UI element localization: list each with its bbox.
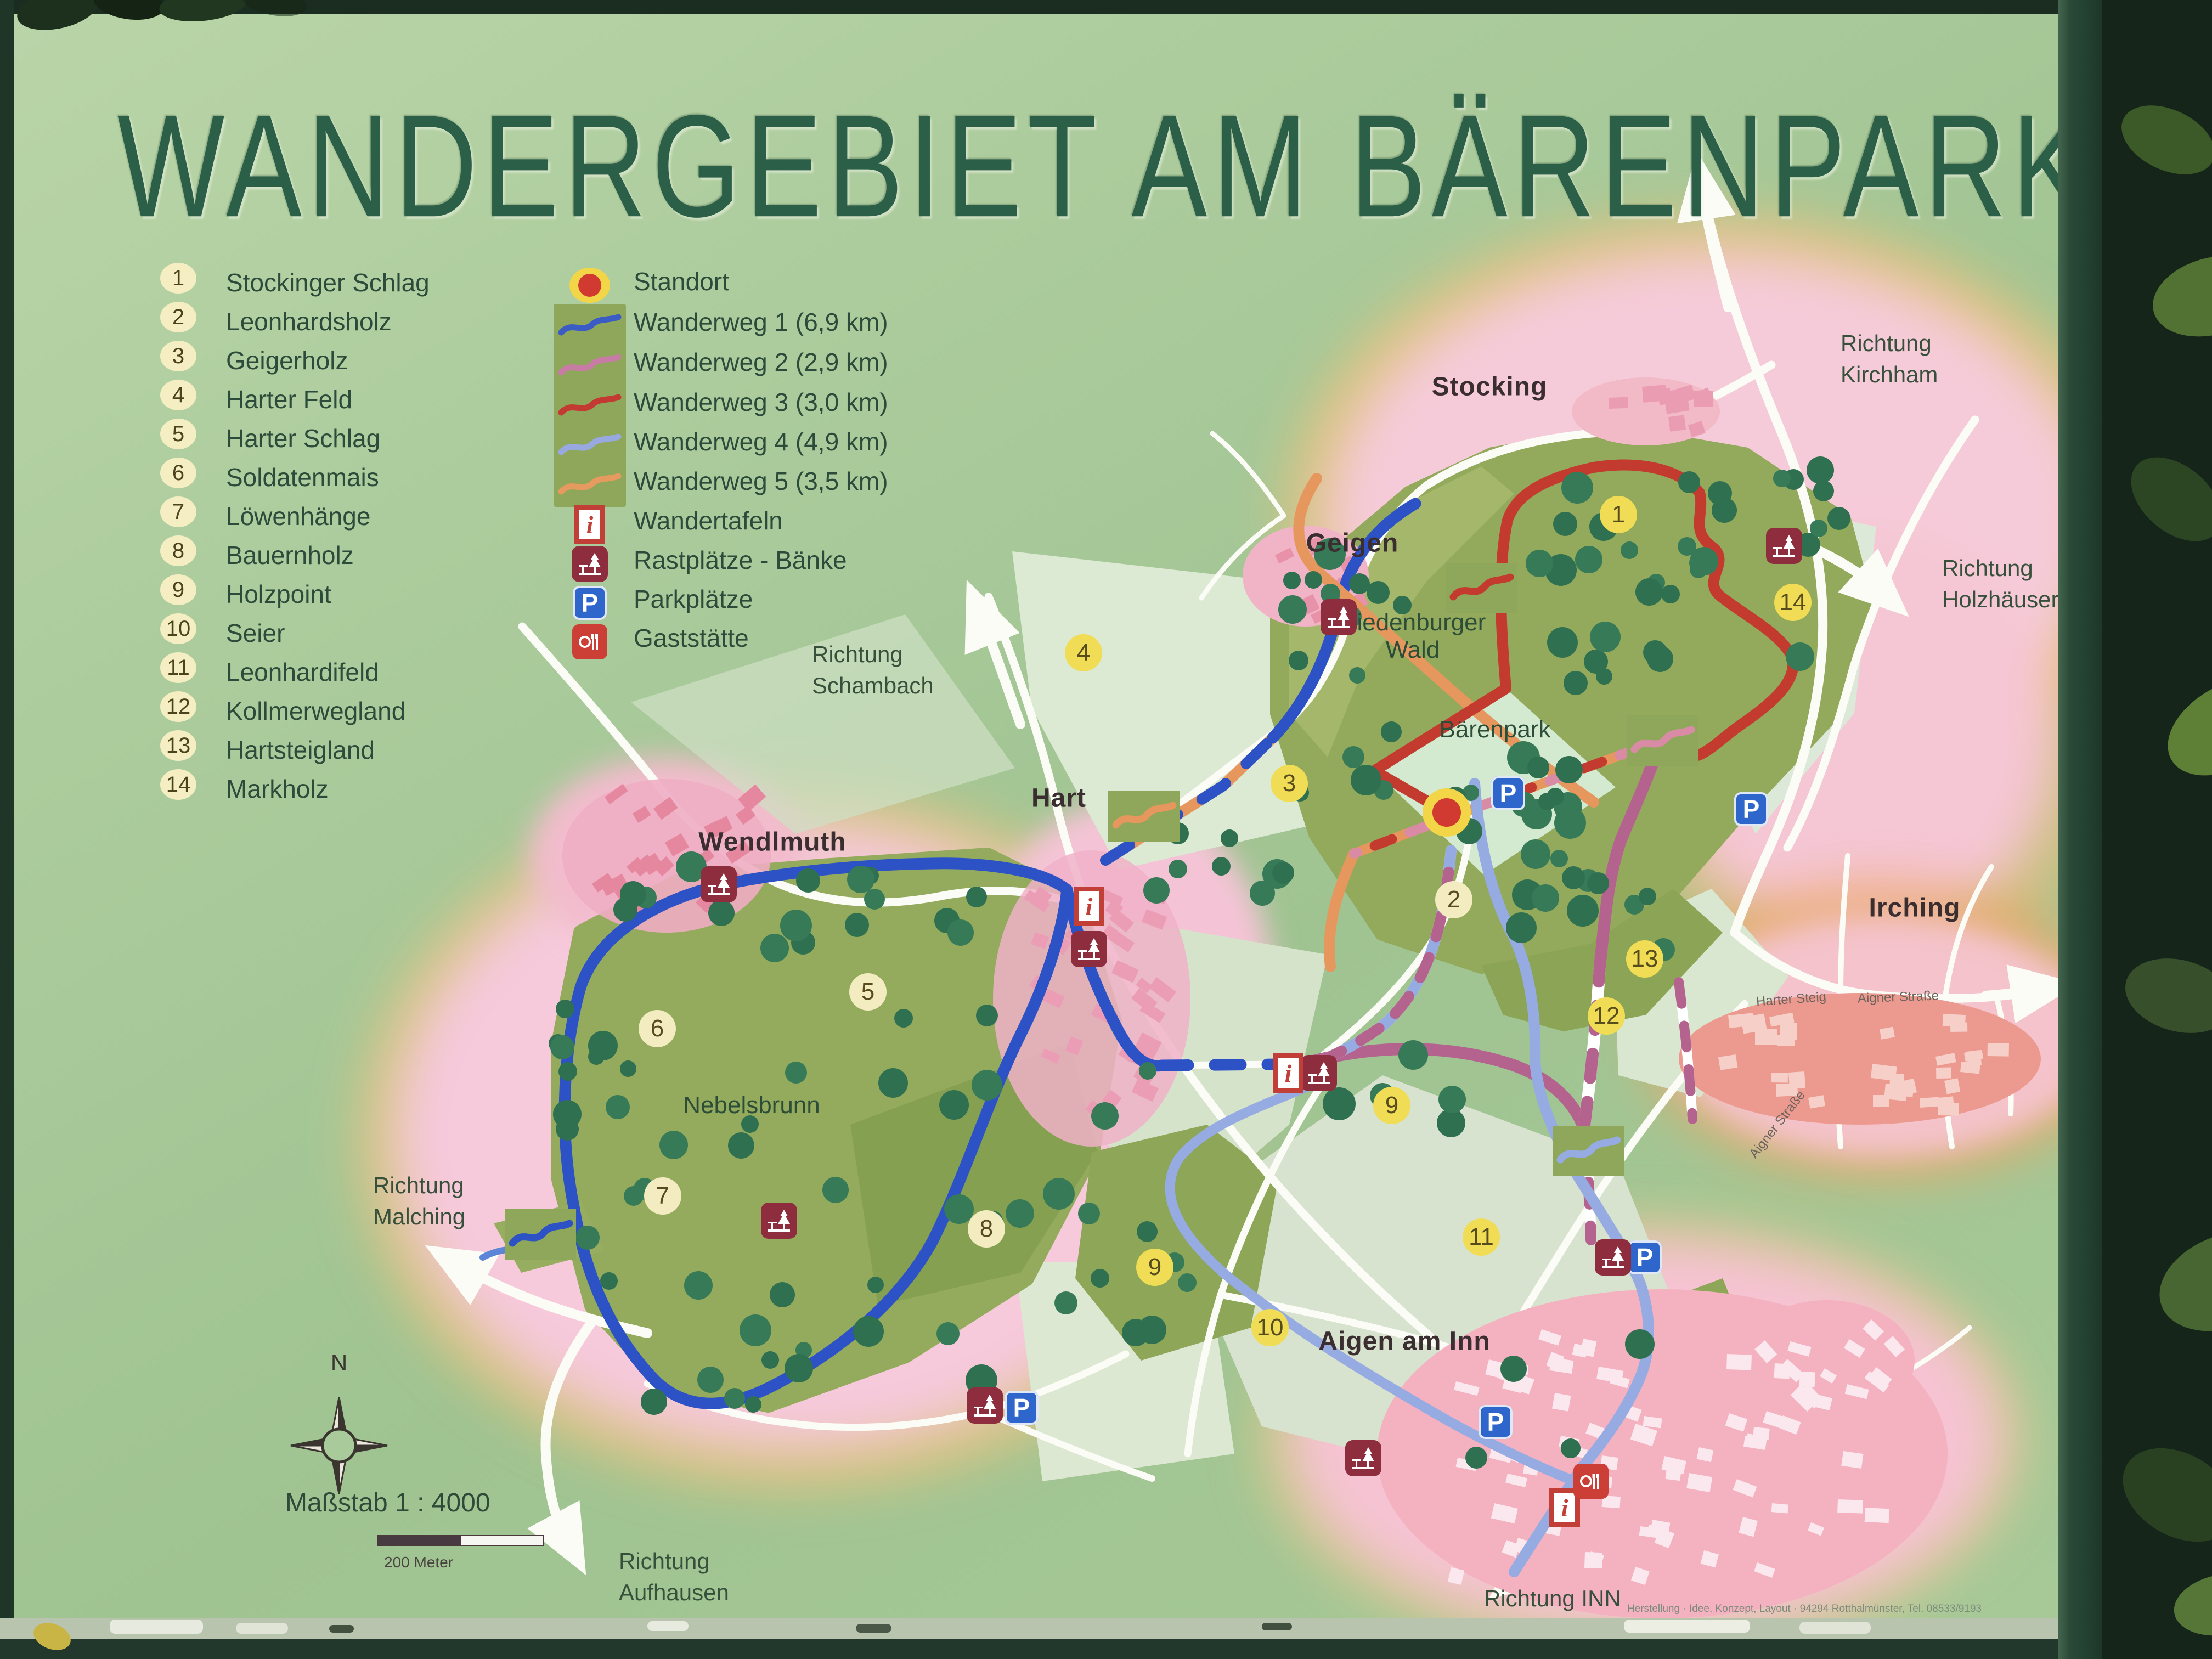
legend-number-badge: 7 bbox=[160, 496, 196, 527]
rest-area-icon bbox=[967, 1387, 1003, 1424]
legend-symbol-row: Wanderweg 4 (4,9 km) bbox=[551, 422, 1155, 461]
map-number-badge: 4 bbox=[1065, 634, 1102, 672]
trail-swatch bbox=[554, 384, 626, 428]
map-number-badge: 14 bbox=[1774, 584, 1812, 621]
rest-area-icon bbox=[572, 546, 608, 582]
area-label: Riedenburger Wald bbox=[1340, 609, 1486, 664]
info-board-icon: i bbox=[1074, 887, 1104, 926]
map-icon bbox=[1071, 931, 1107, 967]
sign-title: WANDERGEBIET AM BÄRENPARK bbox=[117, 82, 2093, 250]
street-label: Harter Steig bbox=[1756, 990, 1827, 1010]
map-icon bbox=[1423, 788, 1471, 837]
legend-symbol-label: Standort bbox=[634, 267, 729, 296]
map-number-badge: 10 bbox=[1251, 1309, 1289, 1346]
rest-area-icon bbox=[1301, 1055, 1337, 1091]
legend-number-label: Löwenhänge bbox=[226, 501, 370, 531]
frame-bottom-worn bbox=[0, 1618, 2212, 1640]
legend-numbered-row: 14 Markholz bbox=[160, 769, 654, 809]
legend-symbol-row: Wanderweg 5 (3,5 km) bbox=[551, 461, 1155, 501]
rest-area-icon bbox=[761, 1203, 797, 1239]
trail-marker-box bbox=[505, 1209, 576, 1260]
parking-icon: P bbox=[573, 586, 607, 620]
map-icon: P bbox=[1734, 792, 1768, 826]
town-label: Irching bbox=[1869, 893, 1960, 923]
legend-symbol-label: Gaststätte bbox=[634, 623, 749, 653]
trail-swatch bbox=[554, 304, 626, 348]
rest-area-icon bbox=[1766, 528, 1802, 564]
rest-area-icon bbox=[1595, 1239, 1631, 1276]
map-icon bbox=[1446, 563, 1517, 613]
legend-symbol-row: PParkplätze bbox=[551, 579, 1155, 619]
map-icon bbox=[1345, 1440, 1381, 1476]
street-label: Aigner Straße bbox=[1858, 988, 1939, 1006]
map-number-badge: 12 bbox=[1588, 997, 1625, 1035]
overlays: WANDERGEBIET AM BÄRENPARK 1 Stockinger S… bbox=[0, 0, 2212, 1659]
legend-number-label: Leonhardifeld bbox=[226, 657, 379, 687]
legend-symbol-row: Standort bbox=[551, 262, 1155, 301]
legend-number-label: Seier bbox=[226, 618, 285, 648]
trail-swatch bbox=[554, 463, 626, 507]
legend-symbol-label: Wanderweg 4 (4,9 km) bbox=[634, 427, 888, 456]
map-icon: i bbox=[1273, 1053, 1304, 1093]
parking-icon: P bbox=[1479, 1405, 1513, 1439]
legend-symbol-row: iWandertafeln bbox=[551, 501, 1155, 540]
map-icon bbox=[761, 1203, 797, 1239]
town-label: Aigen am Inn bbox=[1318, 1327, 1490, 1357]
scale-bar bbox=[379, 1536, 543, 1545]
legend-number-badge: 1 bbox=[160, 263, 196, 294]
trail-swatch bbox=[554, 424, 626, 467]
map-icon bbox=[1573, 1464, 1609, 1499]
you-are-here-icon bbox=[569, 268, 610, 303]
legend-number-badge: 11 bbox=[160, 652, 196, 683]
legend-number-badge: 3 bbox=[160, 341, 196, 371]
legend-numbered-row: 13 Hartsteigland bbox=[160, 730, 654, 770]
map-number-badge: 3 bbox=[1271, 765, 1308, 802]
scale-bar-label: 200 Meter bbox=[384, 1554, 453, 1571]
legend-number-label: Holzpoint bbox=[226, 579, 331, 609]
info-board-icon: i bbox=[1273, 1053, 1304, 1093]
town-label: Stocking bbox=[1432, 372, 1548, 402]
fine-print: Herstellung · Idee, Konzept, Layout · 94… bbox=[1627, 1603, 1982, 1615]
area-label: Nebelsbrunn bbox=[683, 1092, 820, 1119]
frame-right-post bbox=[2058, 0, 2104, 1659]
rest-area-icon bbox=[1345, 1440, 1381, 1476]
direction-label: Richtung INN bbox=[1484, 1583, 1621, 1615]
legend-symbol-row: Wanderweg 2 (2,9 km) bbox=[551, 342, 1155, 382]
legend-symbol-label: Wanderweg 2 (2,9 km) bbox=[634, 347, 888, 377]
scale-label: Maßstab 1 : 4000 bbox=[285, 1488, 490, 1518]
map-icon: P bbox=[1005, 1391, 1039, 1425]
map-number-badge: 2 bbox=[1435, 881, 1472, 918]
legend-number-badge: 4 bbox=[160, 380, 196, 410]
direction-label: Richtung Kirchham bbox=[1841, 328, 1938, 390]
area-label: Bärenpark bbox=[1439, 716, 1550, 743]
map-icon bbox=[1595, 1239, 1631, 1276]
compass-north-label: N bbox=[331, 1350, 347, 1376]
legend-symbol-label: Wanderweg 5 (3,5 km) bbox=[634, 466, 888, 496]
legend-symbol-label: Wandertafeln bbox=[634, 506, 783, 535]
legend-number-label: Harter Schlag bbox=[226, 424, 380, 453]
legend-symbol-label: Wanderweg 1 (6,9 km) bbox=[634, 307, 888, 337]
parking-icon: P bbox=[1491, 776, 1525, 810]
legend-number-label: Hartsteigland bbox=[226, 735, 375, 765]
rest-area-icon bbox=[1321, 599, 1357, 635]
legend-number-badge: 8 bbox=[160, 535, 196, 566]
direction-label: Richtung Schambach bbox=[812, 639, 934, 701]
map-icon: P bbox=[1628, 1240, 1662, 1274]
map-icon: i bbox=[1074, 887, 1104, 926]
legend-number-badge: 13 bbox=[160, 730, 196, 761]
trail-map-sign-photo: WANDERGEBIET AM BÄRENPARK 1 Stockinger S… bbox=[0, 0, 2212, 1659]
legend-symbol-row: Rastplätze - Bänke bbox=[551, 540, 1155, 580]
map-icon: P bbox=[1491, 776, 1525, 810]
town-label: Wendlmuth bbox=[698, 827, 846, 857]
legend-number-label: Kollmerwegland bbox=[226, 696, 405, 726]
legend-number-label: Stockinger Schlag bbox=[226, 268, 430, 297]
map-number-badge: 9 bbox=[1373, 1087, 1410, 1124]
trail-marker-box bbox=[1553, 1126, 1624, 1176]
map-number-badge: 13 bbox=[1626, 940, 1663, 978]
frame-left-edge bbox=[0, 0, 14, 1659]
map-icon: P bbox=[1479, 1405, 1513, 1439]
legend-number-label: Leonhardsholz bbox=[226, 307, 392, 336]
street-label: Aigner Straße bbox=[1746, 1088, 1808, 1161]
map-number-badge: 5 bbox=[849, 973, 887, 1011]
legend-symbol-row: Wanderweg 3 (3,0 km) bbox=[551, 382, 1155, 422]
map-number-badge: 11 bbox=[1463, 1218, 1500, 1256]
direction-label: Richtung Aufhausen bbox=[619, 1546, 729, 1608]
legend-numbered-row: 12 Kollmerwegland bbox=[160, 691, 654, 731]
legend-number-badge: 6 bbox=[160, 458, 196, 488]
legend-number-badge: 10 bbox=[160, 613, 196, 644]
trail-swatch bbox=[554, 344, 626, 388]
parking-icon: P bbox=[1628, 1240, 1662, 1274]
legend-number-label: Soldatenmais bbox=[226, 462, 379, 492]
parking-icon: P bbox=[1734, 792, 1768, 826]
frame-top-edge bbox=[0, 0, 2212, 14]
legend-number-badge: 5 bbox=[160, 419, 196, 449]
map-number-badge: 7 bbox=[644, 1177, 681, 1215]
map-icon bbox=[1108, 791, 1180, 842]
town-label: Geigen bbox=[1306, 528, 1399, 558]
map-number-badge: 8 bbox=[968, 1210, 1005, 1248]
legend-number-label: Bauernholz bbox=[226, 540, 354, 570]
legend-symbol-label: Parkplätze bbox=[634, 584, 753, 614]
map-icon bbox=[1766, 528, 1802, 564]
legend-number-badge: 2 bbox=[160, 302, 196, 332]
map-icon bbox=[701, 866, 737, 902]
rest-area-icon bbox=[1071, 931, 1107, 967]
trail-marker-box bbox=[1108, 791, 1180, 842]
rest-area-icon bbox=[701, 866, 737, 902]
map-icon bbox=[1301, 1055, 1337, 1091]
restaurant-icon bbox=[1573, 1464, 1609, 1499]
legend-number-badge: 14 bbox=[160, 769, 196, 800]
map-number-badge: 9 bbox=[1136, 1249, 1173, 1286]
legend-symbol-label: Wanderweg 3 (3,0 km) bbox=[634, 387, 888, 417]
restaurant-icon bbox=[572, 624, 607, 659]
you-are-here-icon bbox=[1423, 788, 1471, 837]
legend-number-label: Geigerholz bbox=[226, 346, 348, 375]
info-board-icon: i bbox=[574, 505, 605, 544]
map-icon bbox=[967, 1387, 1003, 1424]
town-label: Hart bbox=[1031, 783, 1086, 814]
legend-number-badge: 12 bbox=[160, 691, 196, 722]
map-icon bbox=[1553, 1126, 1624, 1176]
map-number-badge: 1 bbox=[1600, 496, 1637, 533]
legend-symbol-label: Rastplätze - Bänke bbox=[634, 545, 847, 575]
map-number-badge: 6 bbox=[639, 1010, 676, 1047]
parking-icon: P bbox=[1005, 1391, 1039, 1425]
trail-marker-box bbox=[1627, 715, 1698, 766]
map-icon bbox=[505, 1209, 576, 1260]
direction-label: Richtung Holzhäuser bbox=[1942, 553, 2058, 615]
foliage-right bbox=[2102, 0, 2212, 1659]
legend-symbol-row: Wanderweg 1 (6,9 km) bbox=[551, 302, 1155, 342]
direction-label: Richtung Malching bbox=[373, 1170, 465, 1232]
map-icon bbox=[1627, 715, 1698, 766]
legend-number-label: Harter Feld bbox=[226, 385, 352, 414]
map-icon bbox=[1321, 599, 1357, 635]
frame-bottom-edge bbox=[0, 1639, 2212, 1659]
legend-number-label: Markholz bbox=[226, 774, 329, 804]
legend-number-badge: 9 bbox=[160, 574, 196, 605]
trail-marker-box bbox=[1446, 563, 1517, 613]
